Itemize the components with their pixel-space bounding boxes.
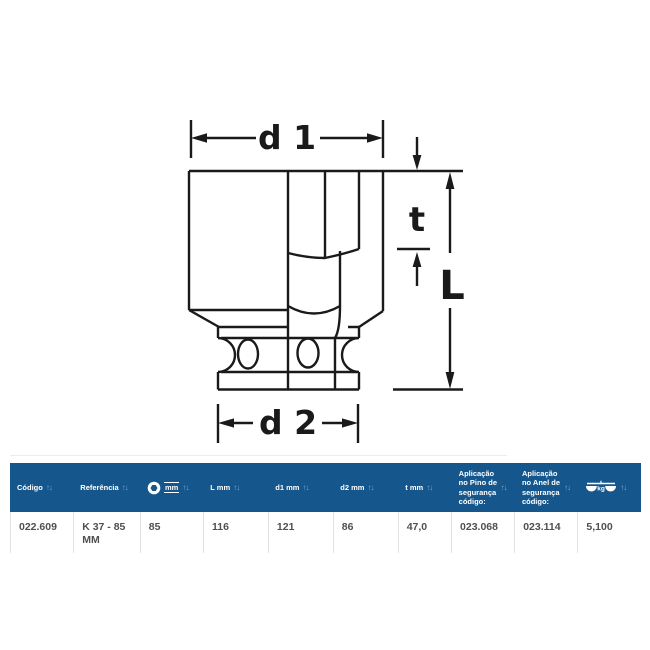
cell-l-mm: 116 xyxy=(204,512,269,553)
cell-referencia: K 37 - 85 MM xyxy=(74,512,141,553)
socket-hex-section xyxy=(238,171,359,390)
column-header-t-mm[interactable]: t mm ↑↓ xyxy=(398,463,451,512)
sort-icon[interactable]: ↑↓ xyxy=(46,483,52,493)
cell-codigo: 022.609 xyxy=(11,512,74,553)
cell-anel-seguranca: 023.114 xyxy=(515,512,578,553)
sort-icon[interactable]: ↑↓ xyxy=(122,483,128,493)
sort-icon[interactable]: ↑↓ xyxy=(367,483,373,493)
table-row: 022.609 K 37 - 85 MM 85 116 121 86 47,0 … xyxy=(10,512,641,553)
sort-icon[interactable]: ↑↓ xyxy=(182,483,188,493)
column-label: Aplicação no Pino de segurança código: xyxy=(459,469,498,507)
L-dimension-label: L xyxy=(439,263,465,309)
sort-icon[interactable]: ↑↓ xyxy=(302,483,308,493)
sort-icon[interactable]: ↑↓ xyxy=(501,483,507,493)
sort-icon[interactable]: ↑↓ xyxy=(620,483,626,493)
column-header-d2-mm[interactable]: d2 mm ↑↓ xyxy=(333,463,398,512)
product-detail-page: d 1 t L d 2 Código ↑↓ Referência ↑↓ mm xyxy=(0,0,650,650)
column-label: t mm xyxy=(405,483,423,492)
column-header-d1-mm[interactable]: d1 mm ↑↓ xyxy=(268,463,333,512)
cell-d2-mm: 86 xyxy=(334,512,399,553)
column-header-codigo[interactable]: Código ↑↓ xyxy=(10,463,73,512)
sort-icon[interactable]: ↑↓ xyxy=(426,483,432,493)
column-header-l-mm[interactable]: L mm ↑↓ xyxy=(203,463,268,512)
table-header-row: Código ↑↓ Referência ↑↓ mm ↑↓ L mm ↑↓ d1 xyxy=(10,463,641,512)
column-label: Referência xyxy=(80,483,118,492)
ball-detent xyxy=(238,340,258,369)
column-label: Código xyxy=(17,483,43,492)
column-label: L mm xyxy=(210,483,230,492)
cell-d1-mm: 121 xyxy=(269,512,334,553)
column-label: d2 mm xyxy=(340,483,364,492)
column-header-mm[interactable]: mm ↑↓ xyxy=(140,463,203,512)
cell-t-mm: 47,0 xyxy=(399,512,452,553)
d1-dimension-label: d 1 xyxy=(258,118,316,157)
column-header-pino-seguranca[interactable]: Aplicação no Pino de segurança código: ↑… xyxy=(452,463,515,512)
cell-pino-seguranca: 023.068 xyxy=(452,512,515,553)
sort-icon[interactable]: ↑↓ xyxy=(564,483,570,493)
column-header-anel-seguranca[interactable]: Aplicação no Anel de segurança código: ↑… xyxy=(515,463,578,512)
sort-icon[interactable]: ↑↓ xyxy=(233,483,239,493)
t-dimension-label: t xyxy=(409,200,425,240)
column-header-kg[interactable]: kg ↑↓ xyxy=(578,463,641,512)
column-label: d1 mm xyxy=(275,483,299,492)
hex-nut-icon xyxy=(147,481,161,495)
section-divider xyxy=(10,455,507,456)
column-label: mm xyxy=(164,482,179,493)
spec-table: Código ↑↓ Referência ↑↓ mm ↑↓ L mm ↑↓ d1 xyxy=(10,463,641,553)
column-header-referencia[interactable]: Referência ↑↓ xyxy=(73,463,140,512)
scale-icon: kg xyxy=(585,480,617,496)
cell-kg: 5,100 xyxy=(578,512,641,553)
kg-label: kg xyxy=(597,485,605,492)
socket-section-drawing: d 1 t L d 2 xyxy=(0,0,650,455)
cell-mm: 85 xyxy=(141,512,204,553)
technical-drawing: d 1 t L d 2 xyxy=(0,0,650,455)
d2-dimension-label: d 2 xyxy=(259,403,317,442)
column-label: Aplicação no Anel de segurança código: xyxy=(522,469,561,507)
pin-hole xyxy=(298,339,319,368)
